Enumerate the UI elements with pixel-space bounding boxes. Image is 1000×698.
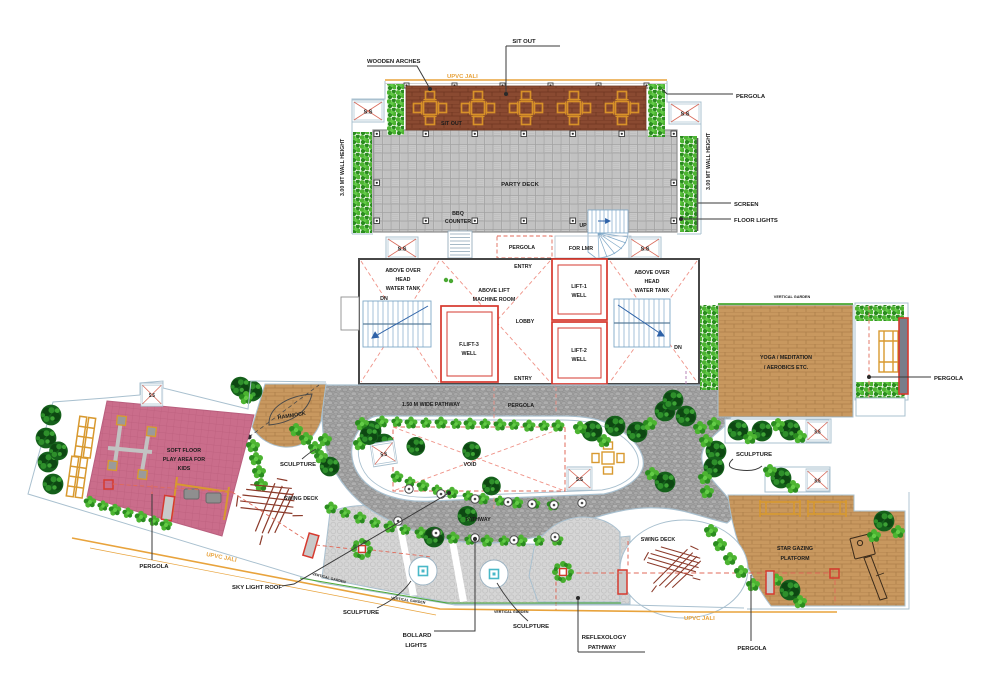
svg-text:VOID: VOID [464, 462, 477, 468]
svg-text:3.00 MT WALL HEIGHT: 3.00 MT WALL HEIGHT [706, 132, 712, 190]
svg-text:VERTICAL GARDEN: VERTICAL GARDEN [494, 610, 529, 614]
svg-text:PERGOLA: PERGOLA [736, 94, 766, 100]
svg-text:BBQ: BBQ [452, 211, 464, 217]
svg-text:ENTRY: ENTRY [514, 376, 532, 382]
svg-text:SOFT FLOOR: SOFT FLOOR [167, 448, 201, 454]
svg-text:SCULPTURE: SCULPTURE [513, 624, 549, 630]
svg-text:LIFT-2: LIFT-2 [571, 348, 587, 354]
svg-text:SIT OUT: SIT OUT [441, 121, 463, 127]
svg-text:DN: DN [674, 345, 682, 351]
svg-text:COUNTER: COUNTER [445, 219, 471, 225]
svg-text:SCULPTURE: SCULPTURE [736, 452, 772, 458]
svg-text:ENTRY: ENTRY [514, 264, 532, 270]
svg-text:SCULPTURE: SCULPTURE [280, 462, 316, 468]
svg-text:ABOVE OVER: ABOVE OVER [634, 270, 669, 276]
svg-text:PLAY AREA FOR: PLAY AREA FOR [163, 457, 205, 463]
svg-text:FLOOR LIGHTS: FLOOR LIGHTS [734, 218, 778, 224]
svg-text:HEAD: HEAD [644, 279, 659, 285]
svg-text:PATHWAY: PATHWAY [588, 645, 616, 651]
svg-text:ABOVE OVER: ABOVE OVER [385, 268, 420, 274]
svg-text:FOR LMR: FOR LMR [569, 246, 593, 252]
svg-text:PERGOLA: PERGOLA [934, 376, 964, 382]
svg-text:SKY LIGHT ROOF: SKY LIGHT ROOF [232, 585, 282, 591]
svg-text:PARTY DECK: PARTY DECK [501, 182, 539, 188]
svg-text:PERGOLA: PERGOLA [737, 646, 767, 652]
svg-text:PLATFORM: PLATFORM [780, 556, 810, 562]
svg-text:STAR GAZING: STAR GAZING [777, 546, 813, 552]
svg-text:LIFT-1: LIFT-1 [571, 284, 587, 290]
svg-text:YOGA / MEDITATION: YOGA / MEDITATION [760, 355, 812, 361]
svg-text:LOBBY: LOBBY [516, 319, 535, 325]
svg-text:HEAD: HEAD [395, 277, 410, 283]
svg-text:1.50 M WIDE PATHWAY: 1.50 M WIDE PATHWAY [402, 402, 461, 408]
svg-text:MACHINE ROOM: MACHINE ROOM [473, 297, 516, 303]
svg-text:WOODEN ARCHES: WOODEN ARCHES [367, 59, 421, 65]
svg-text:PERGOLA: PERGOLA [508, 403, 534, 409]
svg-text:UPVC JALI: UPVC JALI [447, 74, 478, 80]
svg-text:VERTICAL GARDEN: VERTICAL GARDEN [774, 295, 811, 299]
svg-text:SCREEN: SCREEN [734, 202, 759, 208]
svg-text:SWING DECK: SWING DECK [641, 537, 676, 543]
svg-text:SWING DECK: SWING DECK [284, 496, 319, 502]
svg-text:PATHWAY: PATHWAY [465, 517, 491, 523]
svg-text:BOLLARD: BOLLARD [403, 633, 432, 639]
svg-text:REFLEXOLOGY: REFLEXOLOGY [582, 635, 627, 641]
svg-text:F.LIFT-3: F.LIFT-3 [459, 342, 479, 348]
svg-text:SIT OUT: SIT OUT [512, 39, 536, 45]
svg-text:LIGHTS: LIGHTS [405, 643, 427, 649]
svg-text:WATER TANK: WATER TANK [635, 288, 670, 294]
svg-text:PERGOLA: PERGOLA [509, 245, 535, 251]
svg-text:WATER TANK: WATER TANK [386, 286, 421, 292]
svg-text:/ AEROBICS ETC.: / AEROBICS ETC. [764, 365, 809, 371]
svg-text:PERGOLA: PERGOLA [139, 564, 169, 570]
svg-text:ABOVE LIFT: ABOVE LIFT [478, 288, 510, 294]
svg-text:SCULPTURE: SCULPTURE [343, 610, 379, 616]
svg-text:UPVC JALI: UPVC JALI [684, 616, 715, 622]
svg-text:WELL: WELL [571, 357, 587, 363]
svg-text:WELL: WELL [461, 351, 477, 357]
svg-text:WELL: WELL [571, 293, 587, 299]
svg-text:UP: UP [579, 223, 587, 229]
svg-text:KIDS: KIDS [178, 466, 191, 472]
svg-text:3.00 MT WALL HEIGHT: 3.00 MT WALL HEIGHT [340, 138, 346, 196]
